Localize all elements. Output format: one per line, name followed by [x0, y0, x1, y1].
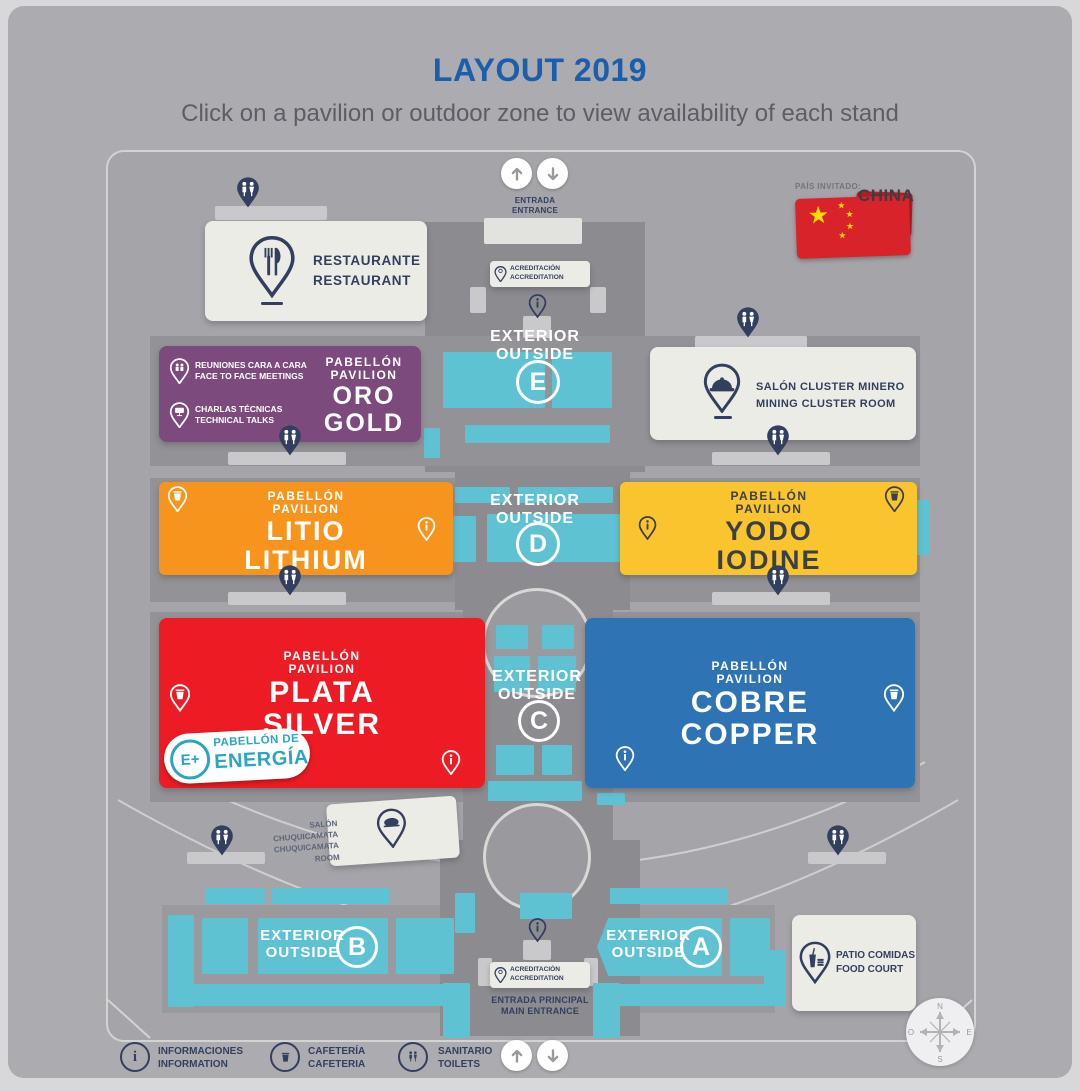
- auditorium-pin-icon: [374, 807, 409, 849]
- toilets-legend-icon: [398, 1042, 428, 1072]
- food-court-pin-icon: [798, 941, 832, 984]
- mining-hat-pin-icon: [702, 363, 742, 413]
- compass: N S E O: [906, 998, 974, 1066]
- stand[interactable]: [443, 983, 470, 1038]
- info-pin-icon: [417, 517, 436, 541]
- door-tab: [215, 206, 327, 220]
- info-pin-icon: [638, 516, 657, 540]
- stand[interactable]: [520, 893, 572, 919]
- stand[interactable]: [496, 625, 528, 649]
- talks-pin-icon: [169, 402, 190, 428]
- flag-star-small: ★: [837, 201, 845, 210]
- flag-star-large: ★: [807, 204, 829, 229]
- stand[interactable]: [764, 950, 786, 1006]
- stand[interactable]: [396, 918, 454, 974]
- arrow-up-icon: [506, 1045, 528, 1067]
- pin-base: [714, 416, 732, 419]
- info-pin-icon: [528, 294, 547, 318]
- stand[interactable]: [542, 745, 572, 775]
- accreditation-pin-icon: [494, 967, 507, 983]
- zone-letter-d[interactable]: D: [516, 522, 560, 566]
- pavilion-copper[interactable]: PABELLÓN PAVILION COBRE COPPER: [585, 618, 915, 788]
- arrow-down-icon: [542, 163, 564, 185]
- stand[interactable]: [542, 625, 574, 649]
- info-pin-icon: [441, 750, 461, 775]
- toilets-pin-icon: [277, 564, 303, 597]
- door-tab: [590, 287, 606, 313]
- zone-letter-a[interactable]: A: [680, 926, 722, 968]
- stand[interactable]: [597, 793, 625, 805]
- svg-text:O: O: [908, 1028, 914, 1037]
- energy-badge-circle: E+: [169, 738, 211, 780]
- flag-star-small: ★: [838, 231, 846, 240]
- meetings-pin-icon: [169, 358, 190, 384]
- stand[interactable]: [488, 781, 582, 801]
- cafeteria-legend-icon: [270, 1042, 300, 1072]
- main-entrance-arrow-up: [501, 1040, 532, 1071]
- toilets-pin-icon: [277, 424, 303, 457]
- restaurant-pin-icon: [247, 235, 297, 298]
- door-tab: [470, 287, 486, 313]
- stand[interactable]: [610, 888, 728, 904]
- food-court: PATIO COMIDAS FOOD COURT: [792, 915, 916, 1011]
- stand[interactable]: [465, 425, 610, 443]
- toilets-pin-icon: [765, 564, 791, 597]
- stand[interactable]: [168, 984, 454, 1006]
- toilets-pin-icon: [209, 824, 235, 857]
- chuquicamata-room: SALÓN CHUQUICAMATA CHUQUICAMATA ROOM: [326, 796, 460, 867]
- stand[interactable]: [272, 888, 390, 904]
- pin-base: [261, 302, 283, 305]
- guest-country-name: CHINA: [858, 186, 914, 206]
- entrance-walkway: [484, 218, 582, 244]
- main-entrance-label: ENTRADA PRINCIPAL MAIN ENTRANCE: [470, 995, 610, 1018]
- layout-page: LAYOUT 2019 Click on a pavilion or outdo…: [0, 0, 1080, 1091]
- accreditation-bottom: ACREDITACIÓN ACCREDITATION: [490, 962, 590, 988]
- pavilion-lithium[interactable]: PABELLÓN PAVILION LITIO LITHIUM: [159, 482, 453, 575]
- toilets-pin-icon: [765, 424, 791, 457]
- arrow-down-icon: [542, 1045, 564, 1067]
- stand[interactable]: [424, 428, 440, 458]
- zone-letter-b[interactable]: B: [336, 926, 378, 968]
- main-entrance-arrow-down: [537, 1040, 568, 1071]
- flag-star-small: ★: [846, 222, 854, 231]
- stand[interactable]: [455, 893, 475, 933]
- stand[interactable]: [202, 918, 248, 974]
- svg-text:N: N: [937, 1002, 943, 1011]
- info-pin-icon: [615, 746, 635, 771]
- cafeteria-pin-icon: [884, 486, 905, 512]
- cafeteria-pin-icon: [883, 684, 905, 712]
- flag-star-small: ★: [845, 210, 853, 219]
- cafeteria-pin-icon: [167, 486, 188, 512]
- info-pin-icon: [528, 918, 547, 942]
- stand[interactable]: [496, 745, 534, 775]
- zone-letter-c[interactable]: C: [518, 700, 560, 742]
- entrance-arrow-up: [501, 158, 532, 189]
- energy-pavilion-badge[interactable]: E+ PABELLÓN DE ENERGÍA: [163, 727, 311, 785]
- toilets-pin-icon: [825, 824, 851, 857]
- svg-text:E: E: [966, 1028, 971, 1037]
- svg-text:S: S: [937, 1055, 942, 1064]
- compass-rose-icon: N S E O: [906, 998, 974, 1066]
- entrance-arrow-down: [537, 158, 568, 189]
- toilets-pin-icon: [235, 176, 261, 209]
- door-tab: [523, 940, 551, 960]
- entrance-label: ENTRADA ENTRANCE: [485, 196, 585, 216]
- stand[interactable]: [600, 984, 770, 1006]
- cafeteria-pin-icon: [169, 684, 191, 712]
- stand[interactable]: [916, 500, 930, 555]
- stand[interactable]: [205, 888, 265, 904]
- accreditation-top: ACREDITACIÓN ACCREDITATION: [490, 261, 590, 287]
- restaurant-room: RESTAURANTE RESTAURANT: [205, 221, 427, 321]
- information-legend-icon: i: [120, 1042, 150, 1072]
- accreditation-pin-icon: [494, 266, 507, 282]
- zone-letter-e[interactable]: E: [516, 360, 560, 404]
- pavilion-iodine[interactable]: PABELLÓN PAVILION YODO IODINE: [620, 482, 917, 575]
- toilets-pin-icon: [735, 306, 761, 339]
- arrow-up-icon: [506, 163, 528, 185]
